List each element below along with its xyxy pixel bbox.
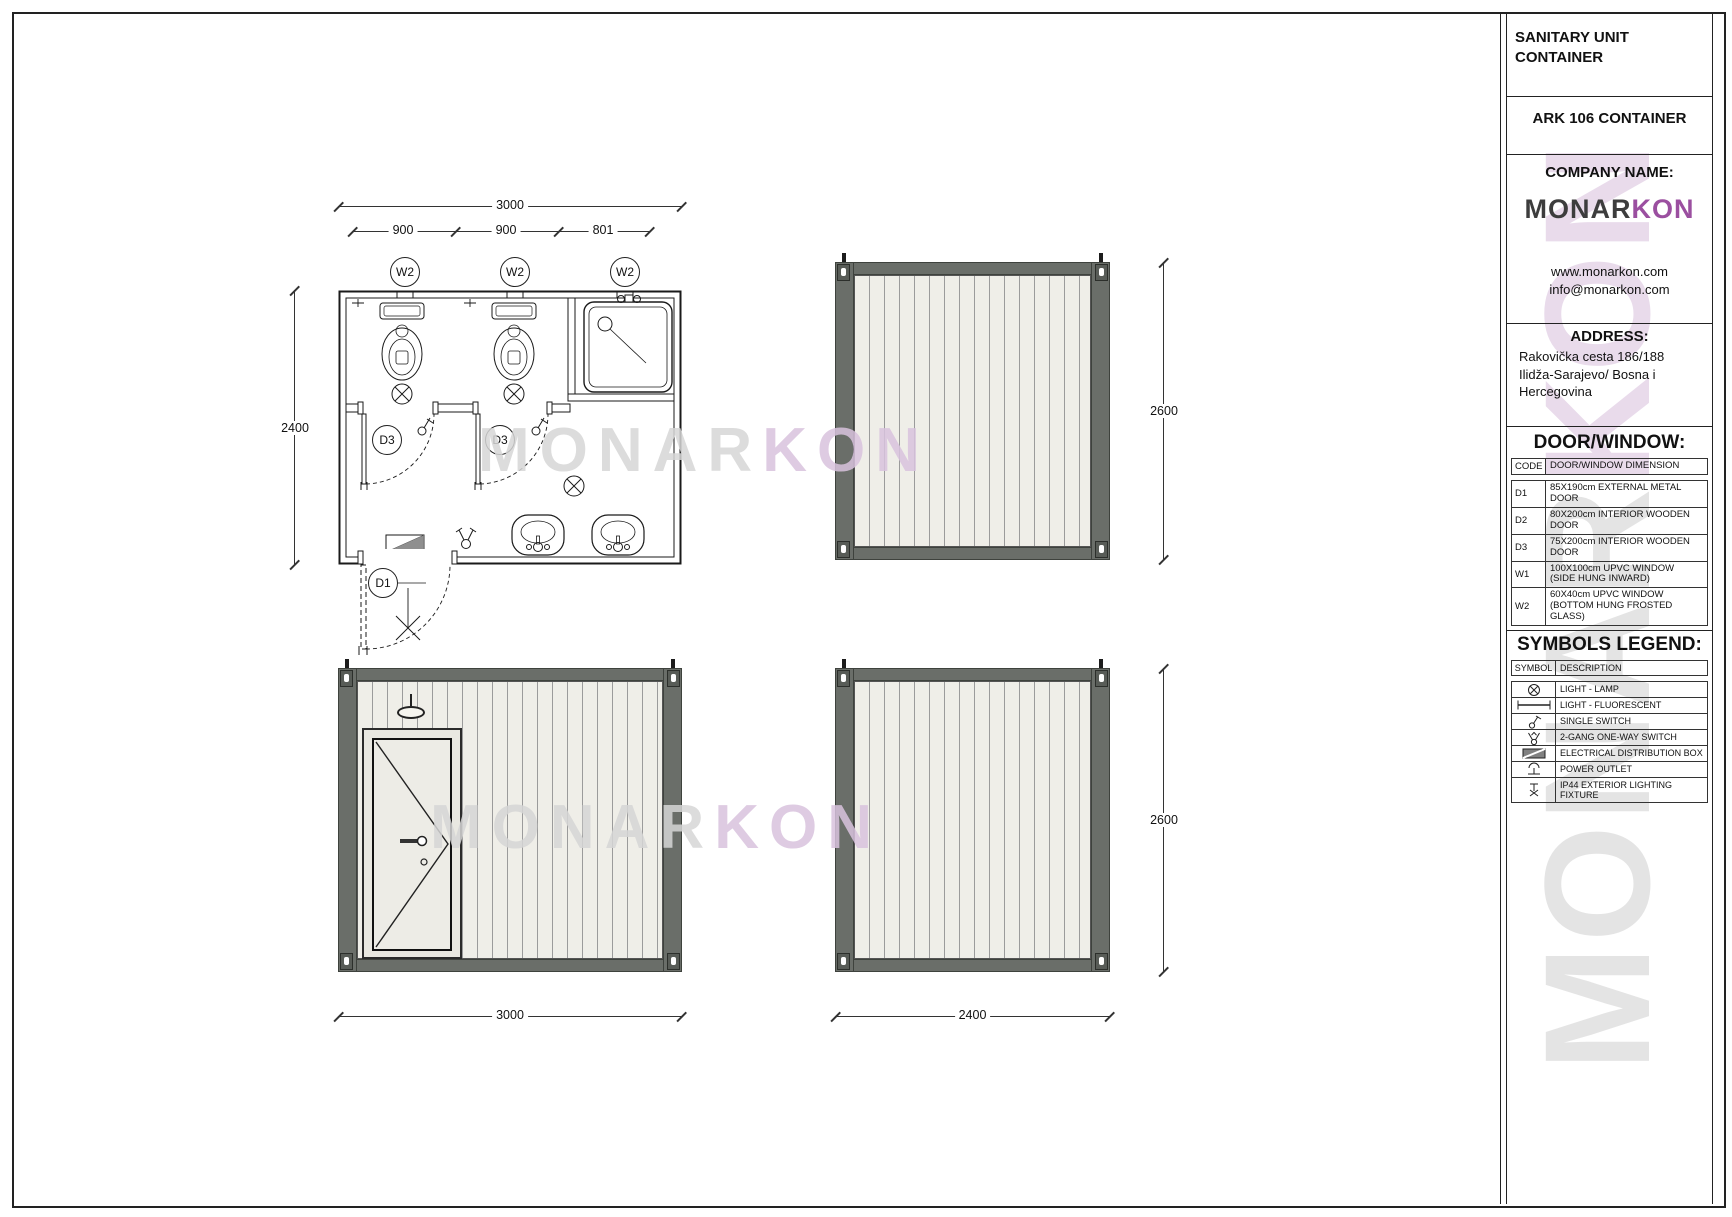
window-tag-label: W2 (396, 265, 414, 279)
symbol-cell (1512, 730, 1556, 745)
title-block: SANITARY UNIT CONTAINER ARK 106 CONTAINE… (1507, 12, 1712, 1204)
door-window-table: CODE DOOR/WINDOW DIMENSION D1 85X190cm E… (1511, 458, 1708, 626)
legend-row: 2-GANG ONE-WAY SWITCH (1511, 730, 1708, 746)
lifting-lug (1099, 659, 1103, 668)
corner-casting (1095, 541, 1108, 558)
elevation-side-top (835, 262, 1110, 560)
company-name-label: COMPANY NAME: (1507, 164, 1712, 181)
symbol-cell (1512, 778, 1556, 803)
table-rows: LIGHT - LAMP LIGHT - FLUORESCENT SINGLE … (1511, 681, 1708, 803)
door-tag-label: D3 (492, 433, 507, 447)
legend-row: SINGLE SWITCH (1511, 714, 1708, 730)
corner-casting (1095, 670, 1108, 687)
dim-value: 900 (389, 223, 418, 237)
door-window-heading: DOOR/WINDOW: (1507, 432, 1712, 454)
dim-value: 2400 (955, 1008, 991, 1022)
symbols-legend-heading: SYMBOLS LEGEND: (1507, 634, 1712, 656)
address-text: Rakovička cesta 186/188 Ilidža-Sarajevo/… (1519, 348, 1712, 401)
door-brace-lines (374, 740, 450, 949)
lifting-lug (671, 659, 675, 668)
row-desc: 75X200cm INTERIOR WOODEN DOOR (1546, 535, 1707, 561)
dim-plan-segments: 900 900 801 (352, 231, 650, 232)
legend-row: LIGHT - LAMP (1511, 681, 1708, 697)
legend-row: POWER OUTLET (1511, 762, 1708, 778)
dim-value: 801 (589, 223, 618, 237)
ip44-exterior-lighting-fixture-icon (1524, 782, 1544, 798)
door-tag-d3-right: D3 (485, 425, 515, 455)
row-code: W2 (1512, 588, 1546, 625)
row-desc: 60X40cm UPVC WINDOW (BOTTOM HUNG FROSTED… (1546, 588, 1707, 625)
exterior-lamp-stem (410, 694, 412, 706)
lifting-lug (1099, 253, 1103, 262)
row-desc: POWER OUTLET (1556, 762, 1707, 776)
logo-purple-part: KON (1632, 194, 1695, 224)
header-desc: DOOR/WINDOW DIMENSION (1546, 459, 1707, 474)
dim-plan-total-width: 3000 (338, 206, 682, 207)
row-desc: SINGLE SWITCH (1556, 714, 1707, 728)
drawing-sheet: MONARKON (0, 0, 1732, 1217)
light-fluorescent-icon (1515, 698, 1553, 712)
symbol-cell (1512, 682, 1556, 696)
row-desc: 85X190cm EXTERNAL METAL DOOR (1546, 481, 1707, 507)
dim-value: 2600 (1146, 404, 1182, 418)
corner-casting (340, 670, 353, 687)
top-rail (338, 668, 682, 681)
two-gang-one-way-switch-icon (1524, 730, 1544, 745)
corner-casting (837, 264, 850, 281)
elevation-front (338, 668, 682, 972)
door-tag-d3-left: D3 (372, 425, 402, 455)
corner-post-right (663, 668, 682, 972)
logo-dark-part: MONAR (1525, 194, 1632, 224)
corner-casting (667, 670, 680, 687)
row-desc: 100X100cm UPVC WINDOW (SIDE HUNG INWARD) (1546, 562, 1707, 588)
divider (1507, 323, 1712, 324)
dim-value: 2600 (1146, 813, 1182, 827)
symbol-cell (1512, 762, 1556, 777)
row-desc: IP44 EXTERIOR LIGHTING FIXTURE (1556, 778, 1707, 803)
symbol-cell (1512, 714, 1556, 729)
row-desc: LIGHT - LAMP (1556, 682, 1707, 696)
row-desc: 80X200cm INTERIOR WOODEN DOOR (1546, 508, 1707, 534)
entrance-door (362, 728, 462, 959)
corner-casting (340, 953, 353, 970)
top-rail (835, 668, 1110, 681)
row-code: W1 (1512, 562, 1546, 588)
header-symbol: SYMBOL (1512, 661, 1556, 675)
sheet-border (12, 12, 1726, 1208)
table-row: D1 85X190cm EXTERNAL METAL DOOR (1511, 480, 1708, 508)
bottom-rail (835, 547, 1110, 560)
window-tag-label: W2 (616, 265, 634, 279)
header-code: CODE (1512, 459, 1546, 474)
door-tag-label: D3 (379, 433, 394, 447)
divider (1507, 154, 1712, 155)
elevation-side-bottom (835, 668, 1110, 972)
table-row: W1 100X100cm UPVC WINDOW (SIDE HUNG INWA… (1511, 562, 1708, 589)
row-code: D1 (1512, 481, 1546, 507)
dim-value: 900 (492, 223, 521, 237)
table-row: D2 80X200cm INTERIOR WOODEN DOOR (1511, 508, 1708, 535)
dim-side-width: 2400 (835, 1016, 1110, 1017)
symbol-cell (1512, 698, 1556, 713)
table-header-row: CODE DOOR/WINDOW DIMENSION (1511, 458, 1708, 475)
symbol-cell (1512, 746, 1556, 761)
divider (1507, 426, 1712, 427)
dim-value: 2400 (277, 421, 313, 435)
row-code: D3 (1512, 535, 1546, 561)
legend-row: ELECTRICAL DISTRIBUTION BOX (1511, 746, 1708, 762)
electrical-distribution-box-icon (1521, 747, 1547, 760)
dim-front-width: 3000 (338, 1016, 682, 1017)
address-label: ADDRESS: (1507, 328, 1712, 345)
corner-post-left (835, 262, 854, 560)
door-tag-label: D1 (375, 576, 390, 590)
corner-post-right (1091, 262, 1110, 560)
light-lamp-icon (1522, 683, 1546, 697)
corner-casting (1095, 264, 1108, 281)
table-header-row: SYMBOL DESCRIPTION (1511, 660, 1708, 676)
project-title: SANITARY UNIT CONTAINER (1515, 28, 1712, 69)
titleblock-right-line (1712, 12, 1713, 1204)
corrugated-panel (854, 275, 1091, 547)
corner-casting (837, 670, 850, 687)
divider (1507, 96, 1712, 97)
lifting-lug (345, 659, 349, 668)
dim-elev-right-top-height: 2600 (1163, 262, 1164, 560)
dim-elev-right-bottom-height: 2600 (1163, 668, 1164, 972)
symbols-legend-table: SYMBOL DESCRIPTION LIGHT - LAMP LIGHT - … (1511, 660, 1708, 803)
window-tag-label: W2 (506, 265, 524, 279)
power-outlet-icon (1524, 762, 1544, 777)
corner-casting (667, 953, 680, 970)
corner-casting (837, 541, 850, 558)
company-website: www.monarkon.com (1507, 264, 1712, 279)
exterior-lamp (397, 706, 425, 719)
corner-casting (837, 953, 850, 970)
dim-value: 3000 (492, 1008, 528, 1022)
corner-casting (1095, 953, 1108, 970)
single-switch-icon (1524, 714, 1544, 729)
product-title: ARK 106 CONTAINER (1507, 110, 1712, 127)
row-desc: ELECTRICAL DISTRIBUTION BOX (1556, 746, 1707, 760)
lifting-lug (842, 253, 846, 262)
legend-row: LIGHT - FLUORESCENT (1511, 698, 1708, 714)
window-tag-w2-2: W2 (500, 257, 530, 287)
table-rows: D1 85X190cm EXTERNAL METAL DOOR D2 80X20… (1511, 480, 1708, 626)
row-desc: 2-GANG ONE-WAY SWITCH (1556, 730, 1707, 744)
header-desc: DESCRIPTION (1556, 661, 1707, 675)
corner-post-left (338, 668, 357, 972)
dim-plan-depth: 2400 (294, 290, 295, 565)
corrugated-panel (854, 681, 1091, 959)
bottom-rail (338, 959, 682, 972)
floor-plan-drawing (338, 290, 682, 670)
legend-row: IP44 EXTERIOR LIGHTING FIXTURE (1511, 778, 1708, 804)
window-tag-w2-1: W2 (390, 257, 420, 287)
lifting-lug (842, 659, 846, 668)
table-row: W2 60X40cm UPVC WINDOW (BOTTOM HUNG FROS… (1511, 588, 1708, 626)
dim-value: 3000 (492, 198, 528, 212)
table-row: D3 75X200cm INTERIOR WOODEN DOOR (1511, 535, 1708, 562)
window-tag-w2-3: W2 (610, 257, 640, 287)
bottom-rail (835, 959, 1110, 972)
corner-post-left (835, 668, 854, 972)
row-code: D2 (1512, 508, 1546, 534)
entrance-door-leaf (372, 738, 452, 951)
company-email: info@monarkon.com (1507, 282, 1712, 297)
titleblock-separator-line (1500, 12, 1501, 1204)
company-logo: MONARKON (1507, 194, 1712, 225)
door-tag-d1: D1 (368, 568, 398, 598)
divider (1507, 630, 1712, 631)
row-desc: LIGHT - FLUORESCENT (1556, 698, 1707, 712)
corner-post-right (1091, 668, 1110, 972)
top-rail (835, 262, 1110, 275)
